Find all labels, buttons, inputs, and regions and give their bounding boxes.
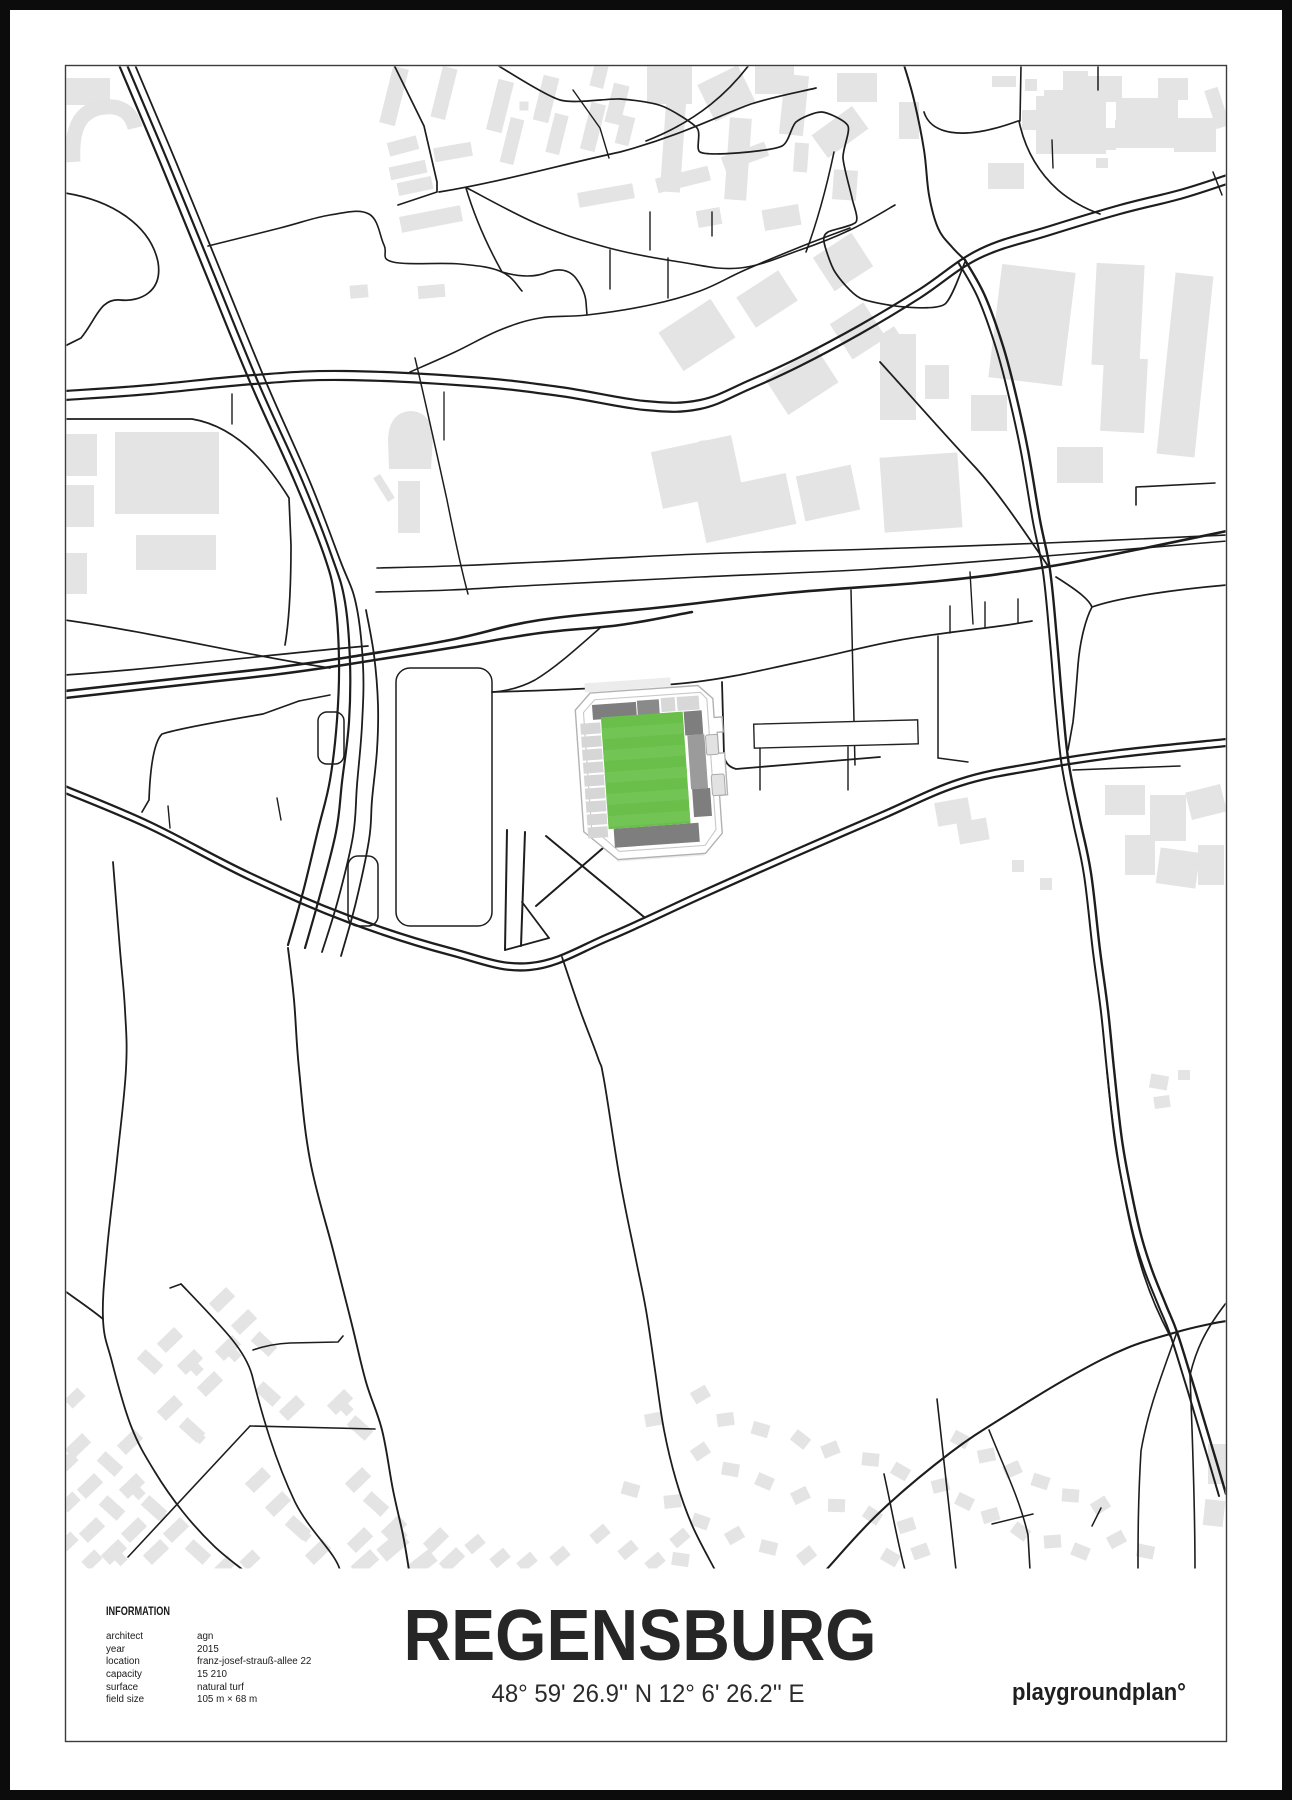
svg-text:franz-josef-strauß-allee 22: franz-josef-strauß-allee 22 xyxy=(197,1656,311,1667)
svg-text:architect: architect xyxy=(106,1631,143,1642)
svg-text:agn: agn xyxy=(197,1631,213,1642)
svg-text:capacity: capacity xyxy=(106,1669,142,1680)
svg-text:2015: 2015 xyxy=(197,1644,219,1655)
svg-text:INFORMATION: INFORMATION xyxy=(106,1606,170,1618)
svg-text:15 210: 15 210 xyxy=(197,1669,228,1680)
svg-text:REGENSBURG: REGENSBURG xyxy=(404,1596,877,1676)
svg-text:48° 59' 26.9'' N 12° 6' 26.2': 48° 59' 26.9'' N 12° 6' 26.2'' E xyxy=(492,1680,805,1708)
svg-text:year: year xyxy=(106,1644,126,1655)
svg-text:location: location xyxy=(106,1656,140,1667)
svg-text:natural turf: natural turf xyxy=(197,1682,244,1693)
svg-text:playgroundplan°: playgroundplan° xyxy=(1012,1679,1186,1706)
svg-text:field size: field size xyxy=(106,1694,145,1705)
svg-text:surface: surface xyxy=(106,1682,139,1693)
svg-text:105 m × 68 m: 105 m × 68 m xyxy=(197,1694,257,1705)
